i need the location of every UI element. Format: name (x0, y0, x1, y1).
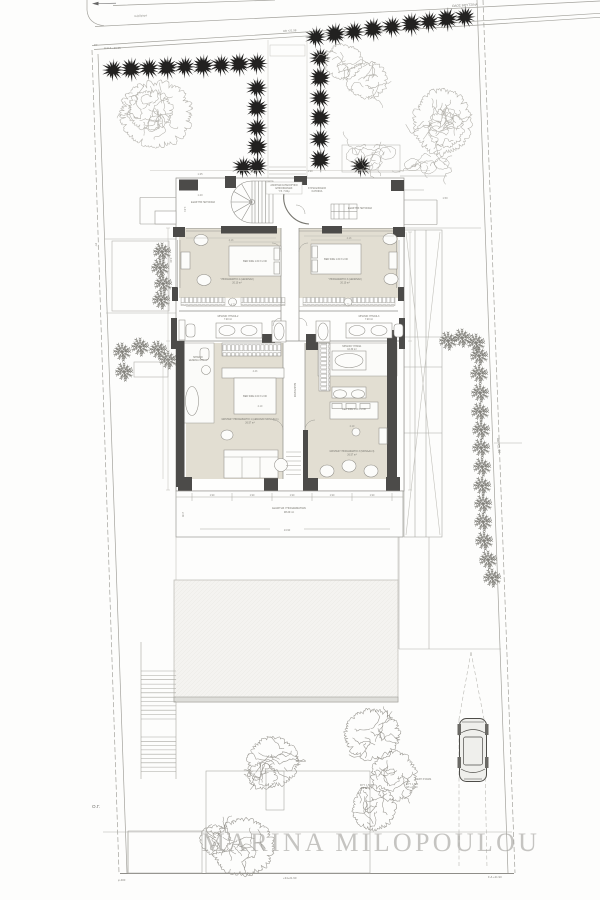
svg-text:ΞΕΝΩΝΑ 3.70 m²: ΞΕΝΩΝΑ 3.70 m² (189, 359, 208, 362)
svg-text:ΕΞΩΣΤΗΣ ΓΕΙΤΟΝΙΑΣ: ΕΞΩΣΤΗΣ ΓΕΙΤΟΝΙΑΣ (191, 201, 216, 204)
svg-text:1.44: 1.44 (183, 206, 187, 212)
svg-text:1.35: 1.35 (197, 172, 203, 176)
svg-text:4.13: 4.13 (347, 237, 352, 240)
svg-text:2.45: 2.45 (181, 512, 185, 518)
svg-text:2.10: 2.10 (258, 405, 263, 408)
svg-text:1.90: 1.90 (250, 494, 255, 497)
svg-text:26.57 m²: 26.57 m² (347, 454, 357, 457)
svg-text:4.13: 4.13 (229, 239, 234, 242)
svg-text:1.90: 1.90 (330, 494, 335, 497)
svg-text:Α.Θ.Σ +21.05: Α.Θ.Σ +21.05 (104, 46, 121, 50)
svg-text:38.29 m²: 38.29 m² (284, 510, 294, 514)
svg-text:1.90: 1.90 (370, 494, 375, 497)
svg-text:Ρ.Γ: Ρ.Γ (94, 43, 98, 47)
svg-text:20.10 m²: 20.10 m² (232, 282, 242, 285)
svg-text:2.10: 2.10 (350, 425, 355, 428)
svg-text:4.43: 4.43 (253, 370, 258, 373)
svg-text:Ο.Γ.: Ο.Γ. (92, 804, 100, 809)
svg-text:1.50: 1.50 (442, 196, 448, 200)
svg-text:ΘΕΣΗ ΣΤΑΘΜ.: ΘΕΣΗ ΣΤΑΘΜ. (415, 778, 432, 781)
svg-text:ΑΘ +21.90: ΑΘ +21.90 (406, 786, 418, 789)
svg-text:+21.90: +21.90 (360, 787, 368, 790)
svg-text:4.70: 4.70 (231, 304, 236, 307)
svg-text:ΥΨ. 7.00μ: ΥΨ. 7.00μ (279, 190, 291, 193)
svg-text:4.29: 4.29 (169, 257, 173, 263)
svg-text:Σ.Δ +21.90: Σ.Δ +21.90 (488, 875, 502, 879)
svg-text:1.20: 1.20 (197, 193, 203, 197)
svg-text:ΑΘ +21.98: ΑΘ +21.98 (283, 28, 297, 33)
svg-text:1.90: 1.90 (307, 169, 313, 173)
svg-text:πεζοδρόμιο: πεζοδρόμιο (134, 13, 148, 18)
svg-text:BED SIZE 1.60 Χ 2.00: BED SIZE 1.60 Χ 2.00 (243, 260, 267, 263)
svg-text:7.20 m²: 7.20 m² (224, 318, 232, 321)
svg-text:MARINA MILOPOULOU: MARINA MILOPOULOU (202, 828, 541, 857)
svg-text:ΔΙΑΔΡΟΜΟΣ: ΔΙΑΔΡΟΜΟΣ (293, 383, 296, 398)
svg-text:13.90: 13.90 (284, 528, 291, 532)
svg-text:ΕΞΩΣΤΗΣ ΓΕΙΤΟΝΙΑΣ: ΕΞΩΣΤΗΣ ΓΕΙΤΟΝΙΑΣ (348, 207, 373, 210)
svg-text:φ.400: φ.400 (118, 878, 126, 882)
svg-text:4.70: 4.70 (345, 304, 350, 307)
svg-text:1.90: 1.90 (290, 494, 295, 497)
svg-text:BED SIZE 2.00 Χ 2.00: BED SIZE 2.00 Χ 2.00 (243, 395, 267, 398)
svg-text:26.57 m²: 26.57 m² (245, 422, 255, 425)
svg-text:2.05: 2.05 (252, 170, 258, 174)
svg-text:2.25: 2.25 (362, 168, 368, 172)
svg-text:20.10 m²: 20.10 m² (340, 282, 350, 285)
svg-text:1.90: 1.90 (210, 494, 215, 497)
svg-text:BED SIZE 1.60 Χ 2.00: BED SIZE 1.60 Χ 2.00 (324, 258, 348, 261)
svg-text:10.30 m²: 10.30 m² (347, 348, 357, 351)
svg-text:Ρ.Γ: Ρ.Γ (94, 243, 98, 247)
svg-text:BED SIZE 2.00 Χ 2.00: BED SIZE 2.00 Χ 2.00 (342, 408, 366, 411)
svg-text:ΚΑΤΟΙΚΙΑ: ΚΑΤΟΙΚΙΑ (312, 190, 323, 193)
svg-text:ΕΞΩΣΤΗΣ ΥΠΝΟΔΩΜΑΤΙΩΝ: ΕΞΩΣΤΗΣ ΥΠΝΟΔΩΜΑΤΙΩΝ (272, 506, 306, 510)
svg-text:7.20 m²: 7.20 m² (365, 318, 373, 321)
svg-text:+34+21.90: +34+21.90 (283, 876, 297, 880)
